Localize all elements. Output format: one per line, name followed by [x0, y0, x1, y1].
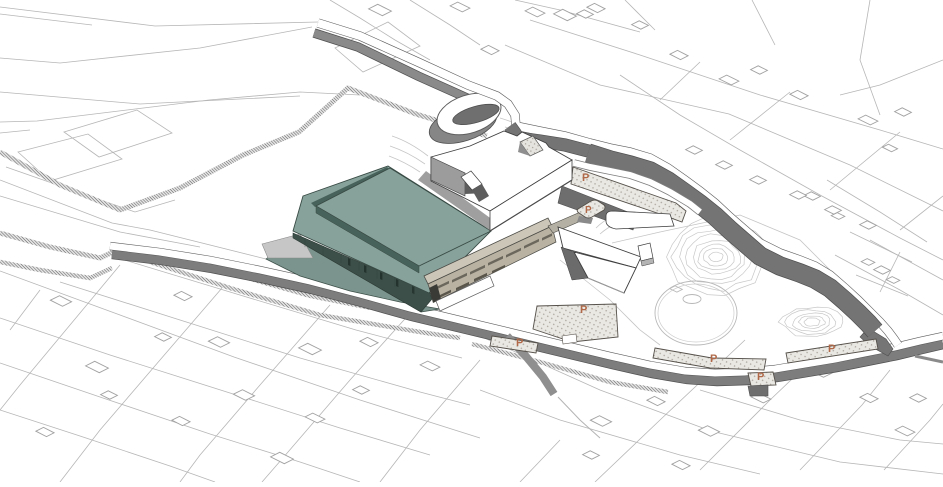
svg-text:P: P [828, 343, 835, 355]
svg-text:P: P [710, 353, 717, 365]
svg-text:P: P [582, 172, 589, 184]
svg-text:P: P [516, 337, 523, 349]
svg-text:P: P [757, 371, 764, 383]
svg-text:P: P [580, 304, 587, 316]
svg-text:P: P [585, 205, 592, 216]
